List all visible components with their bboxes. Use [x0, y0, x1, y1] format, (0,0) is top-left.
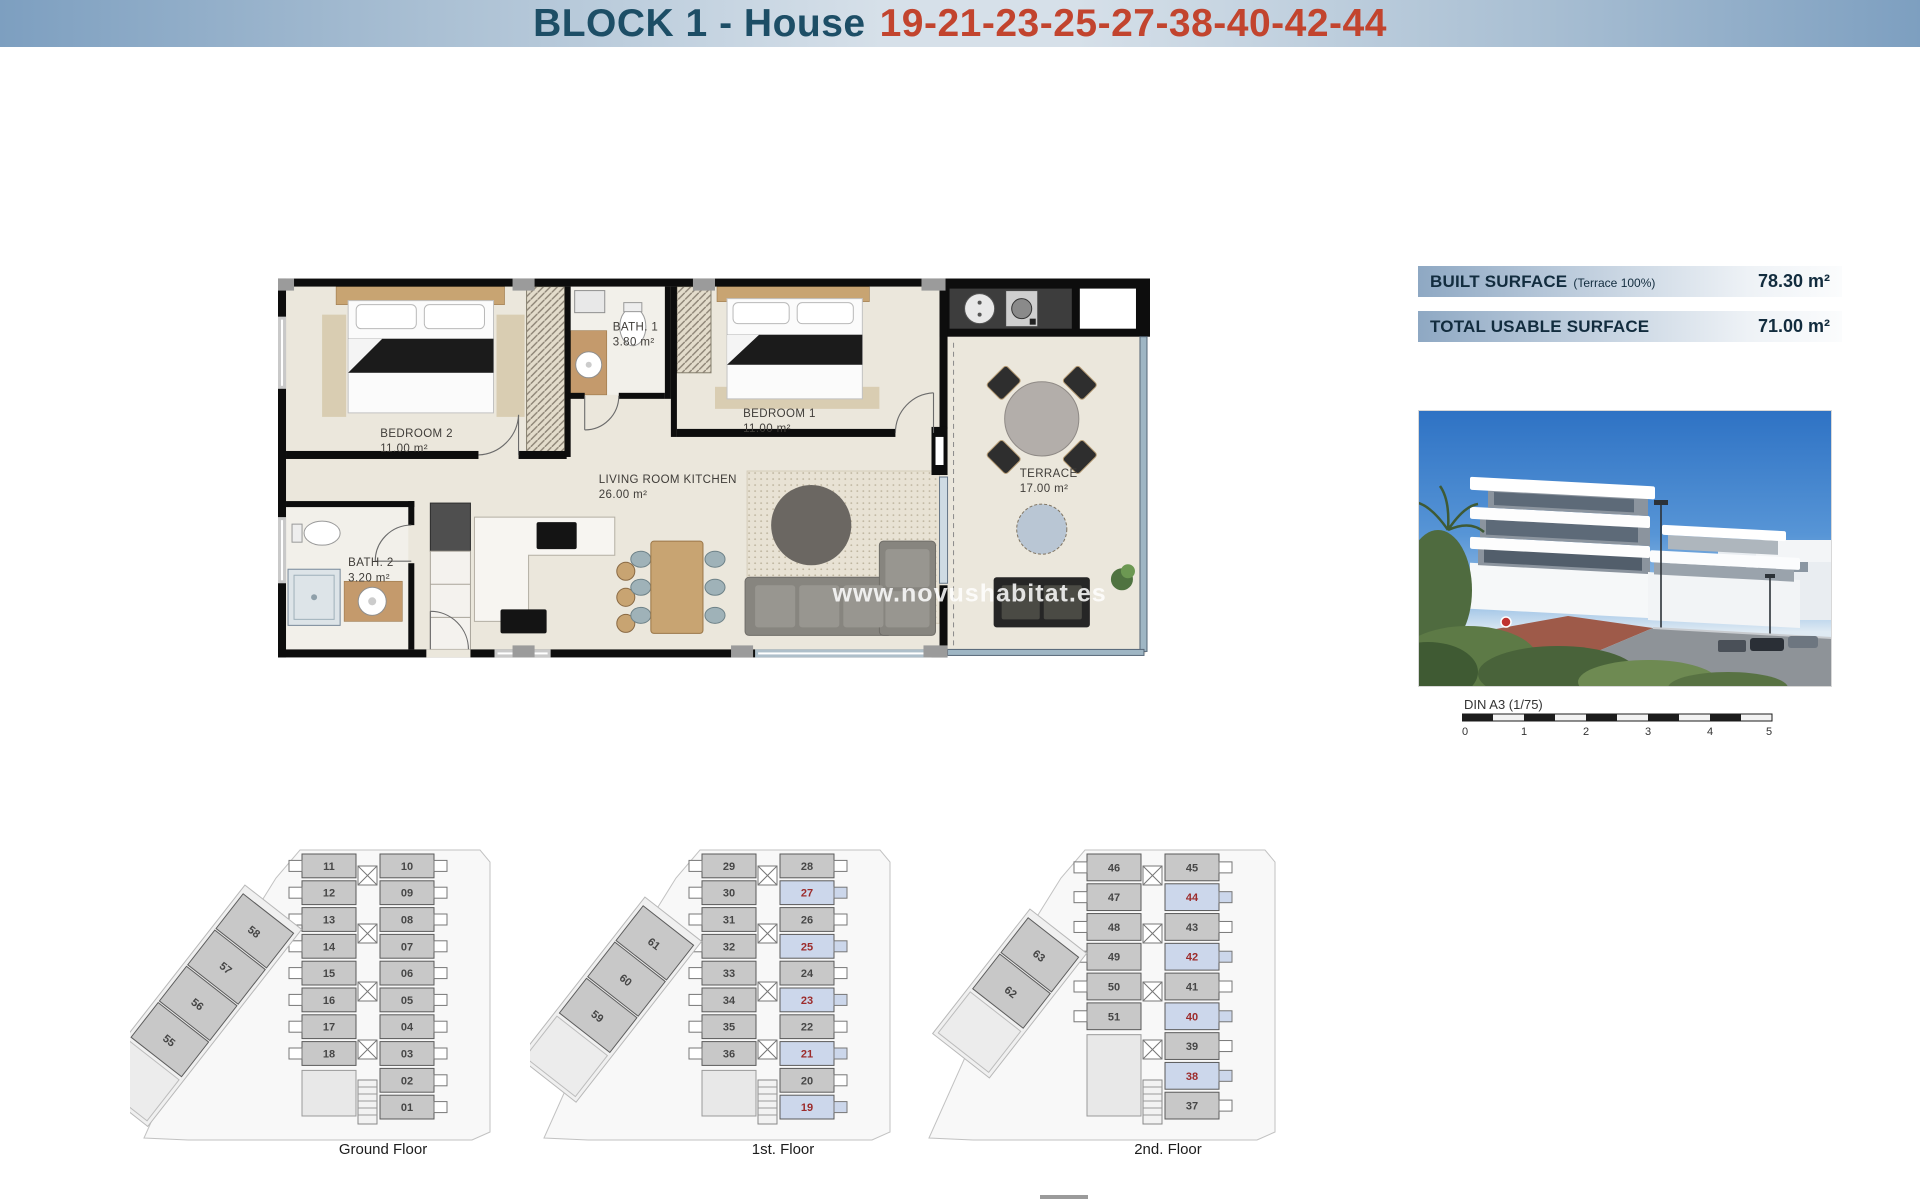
built-surface-bar: BUILT SURFACE (Terrace 100%) 78.30 m² — [1418, 266, 1842, 297]
fridge-cabinets — [430, 503, 470, 649]
svg-text:36: 36 — [723, 1049, 735, 1061]
bath2-area: 3.20 m² — [348, 572, 390, 584]
svg-text:35: 35 — [723, 1022, 735, 1034]
dining-set — [631, 541, 725, 633]
scale-label: DIN A3 (1/75) — [1464, 697, 1543, 712]
svg-text:47: 47 — [1108, 892, 1120, 904]
scale-segments — [1462, 714, 1772, 721]
svg-text:18: 18 — [323, 1049, 335, 1061]
svg-text:11: 11 — [323, 861, 335, 873]
bottom-mark — [1040, 1195, 1088, 1199]
svg-text:43: 43 — [1186, 922, 1198, 934]
svg-text:32: 32 — [723, 941, 735, 953]
svg-text:13: 13 — [323, 915, 335, 927]
bedroom1-label: BEDROOM 1 — [743, 408, 816, 420]
tick-5: 5 — [1766, 726, 1772, 738]
built-surface-label: BUILT SURFACE — [1430, 272, 1567, 292]
svg-text:05: 05 — [401, 995, 413, 1007]
caption-second-floor: 2nd. Floor — [1098, 1141, 1238, 1158]
svg-text:49: 49 — [1108, 952, 1120, 964]
svg-text:41: 41 — [1186, 982, 1198, 994]
bedroom1-bed — [715, 287, 879, 409]
mini-plan-svg: 4544434241403938374647484950516362 — [915, 842, 1305, 1142]
svg-text:12: 12 — [323, 888, 335, 900]
svg-text:46: 46 — [1108, 862, 1120, 874]
neighbor-box — [1080, 289, 1136, 329]
built-surface-note: (Terrace 100%) — [1573, 273, 1655, 290]
svg-text:26: 26 — [801, 915, 813, 927]
svg-text:50: 50 — [1108, 982, 1120, 994]
bedroom2-label: BEDROOM 2 — [380, 428, 453, 440]
usable-surface-value: 71.00 m² — [1758, 316, 1830, 337]
wardrobe2 — [527, 287, 565, 455]
wall-inset — [936, 437, 944, 465]
svg-text:06: 06 — [401, 968, 413, 980]
svg-text:39: 39 — [1186, 1041, 1198, 1053]
svg-text:33: 33 — [723, 968, 735, 980]
svg-text:08: 08 — [401, 915, 413, 927]
svg-text:21: 21 — [801, 1049, 813, 1061]
wardrobe1 — [677, 287, 711, 373]
floor-plan-svg: BEDROOM 2 11.00 m² BATH. 1 3.80 m² BEDRO… — [278, 278, 1150, 658]
scale-ticks: 0 1 2 3 4 5 — [1462, 726, 1772, 738]
floor-plan-first: 2827262524232221201929303132333435366160… — [530, 842, 920, 1142]
bath2-label: BATH. 2 — [348, 557, 393, 569]
svg-text:29: 29 — [723, 861, 735, 873]
building-photo-svg — [1418, 410, 1832, 687]
svg-text:24: 24 — [801, 968, 814, 980]
svg-text:07: 07 — [401, 941, 413, 953]
tick-4: 4 — [1707, 726, 1713, 738]
bedroom2-area: 11.00 m² — [380, 443, 428, 455]
svg-text:14: 14 — [323, 941, 336, 953]
svg-text:31: 31 — [723, 915, 735, 927]
mini-plan-svg: 2827262524232221201929303132333435366160… — [530, 842, 920, 1142]
bath1-label: BATH. 1 — [613, 322, 658, 334]
usable-surface-bar: TOTAL USABLE SURFACE 71.00 m² — [1418, 311, 1842, 342]
house-numbers: 19-21-23-25-27-38-40-42-44 — [880, 2, 1387, 46]
svg-text:40: 40 — [1186, 1011, 1198, 1023]
svg-text:42: 42 — [1186, 952, 1198, 964]
svg-text:22: 22 — [801, 1022, 813, 1034]
svg-text:30: 30 — [723, 888, 735, 900]
watermark: www.novushabitat.es — [831, 579, 1106, 607]
svg-text:37: 37 — [1186, 1101, 1198, 1113]
tv — [501, 609, 547, 633]
tick-1: 1 — [1521, 726, 1527, 738]
svg-text:20: 20 — [801, 1075, 813, 1087]
svg-text:04: 04 — [401, 1022, 414, 1034]
svg-text:09: 09 — [401, 888, 413, 900]
tick-2: 2 — [1583, 726, 1589, 738]
floor-plan-ground: 1009080706050403020111121314151617185857… — [130, 842, 520, 1142]
built-surface-value: 78.30 m² — [1758, 271, 1830, 292]
terrace-label: TERRACE — [1020, 468, 1078, 480]
svg-text:45: 45 — [1186, 862, 1198, 874]
utility-closet — [950, 289, 1072, 329]
title-bar: BLOCK 1 - House 19-21-23-25-27-38-40-42-… — [0, 0, 1920, 47]
living-area: 26.00 m² — [599, 489, 648, 501]
caption-ground-floor: Ground Floor — [313, 1141, 453, 1158]
tick-0: 0 — [1462, 726, 1468, 738]
block-title: BLOCK 1 - House — [533, 2, 866, 46]
svg-text:51: 51 — [1108, 1011, 1120, 1023]
mini-plan-svg: 1009080706050403020111121314151617185857… — [130, 842, 520, 1142]
svg-text:10: 10 — [401, 861, 413, 873]
svg-text:34: 34 — [723, 995, 736, 1007]
svg-text:03: 03 — [401, 1049, 413, 1061]
terrace-rug — [1017, 504, 1067, 554]
svg-text:44: 44 — [1186, 892, 1199, 904]
bedroom1-area: 11.00 m² — [743, 423, 791, 435]
svg-text:16: 16 — [323, 995, 335, 1007]
svg-text:01: 01 — [401, 1102, 413, 1114]
svg-text:23: 23 — [801, 995, 813, 1007]
floor-plan-second: 4544434241403938374647484950516362 — [915, 842, 1305, 1142]
scale-bar: DIN A3 (1/75) 0 1 2 3 4 5 — [1462, 696, 1784, 746]
caption-first-floor: 1st. Floor — [713, 1141, 853, 1158]
svg-text:02: 02 — [401, 1075, 413, 1087]
svg-text:19: 19 — [801, 1102, 813, 1114]
traffic-sign — [1501, 617, 1511, 627]
svg-text:28: 28 — [801, 861, 813, 873]
svg-text:27: 27 — [801, 888, 813, 900]
living-label: LIVING ROOM KITCHEN — [599, 474, 737, 486]
apartment-floor-plan: BEDROOM 2 11.00 m² BATH. 1 3.80 m² BEDRO… — [278, 278, 1150, 658]
scale-bar-svg: DIN A3 (1/75) 0 1 2 3 4 5 — [1462, 696, 1784, 746]
svg-text:15: 15 — [323, 968, 335, 980]
usable-surface-label: TOTAL USABLE SURFACE — [1430, 317, 1649, 337]
terrace-area: 17.00 m² — [1020, 483, 1069, 495]
svg-text:17: 17 — [323, 1022, 335, 1034]
bath1-area: 3.80 m² — [613, 337, 655, 349]
svg-text:38: 38 — [1186, 1071, 1198, 1083]
svg-text:25: 25 — [801, 941, 813, 953]
tick-3: 3 — [1645, 726, 1651, 738]
building-photo — [1418, 410, 1832, 687]
svg-text:48: 48 — [1108, 922, 1120, 934]
